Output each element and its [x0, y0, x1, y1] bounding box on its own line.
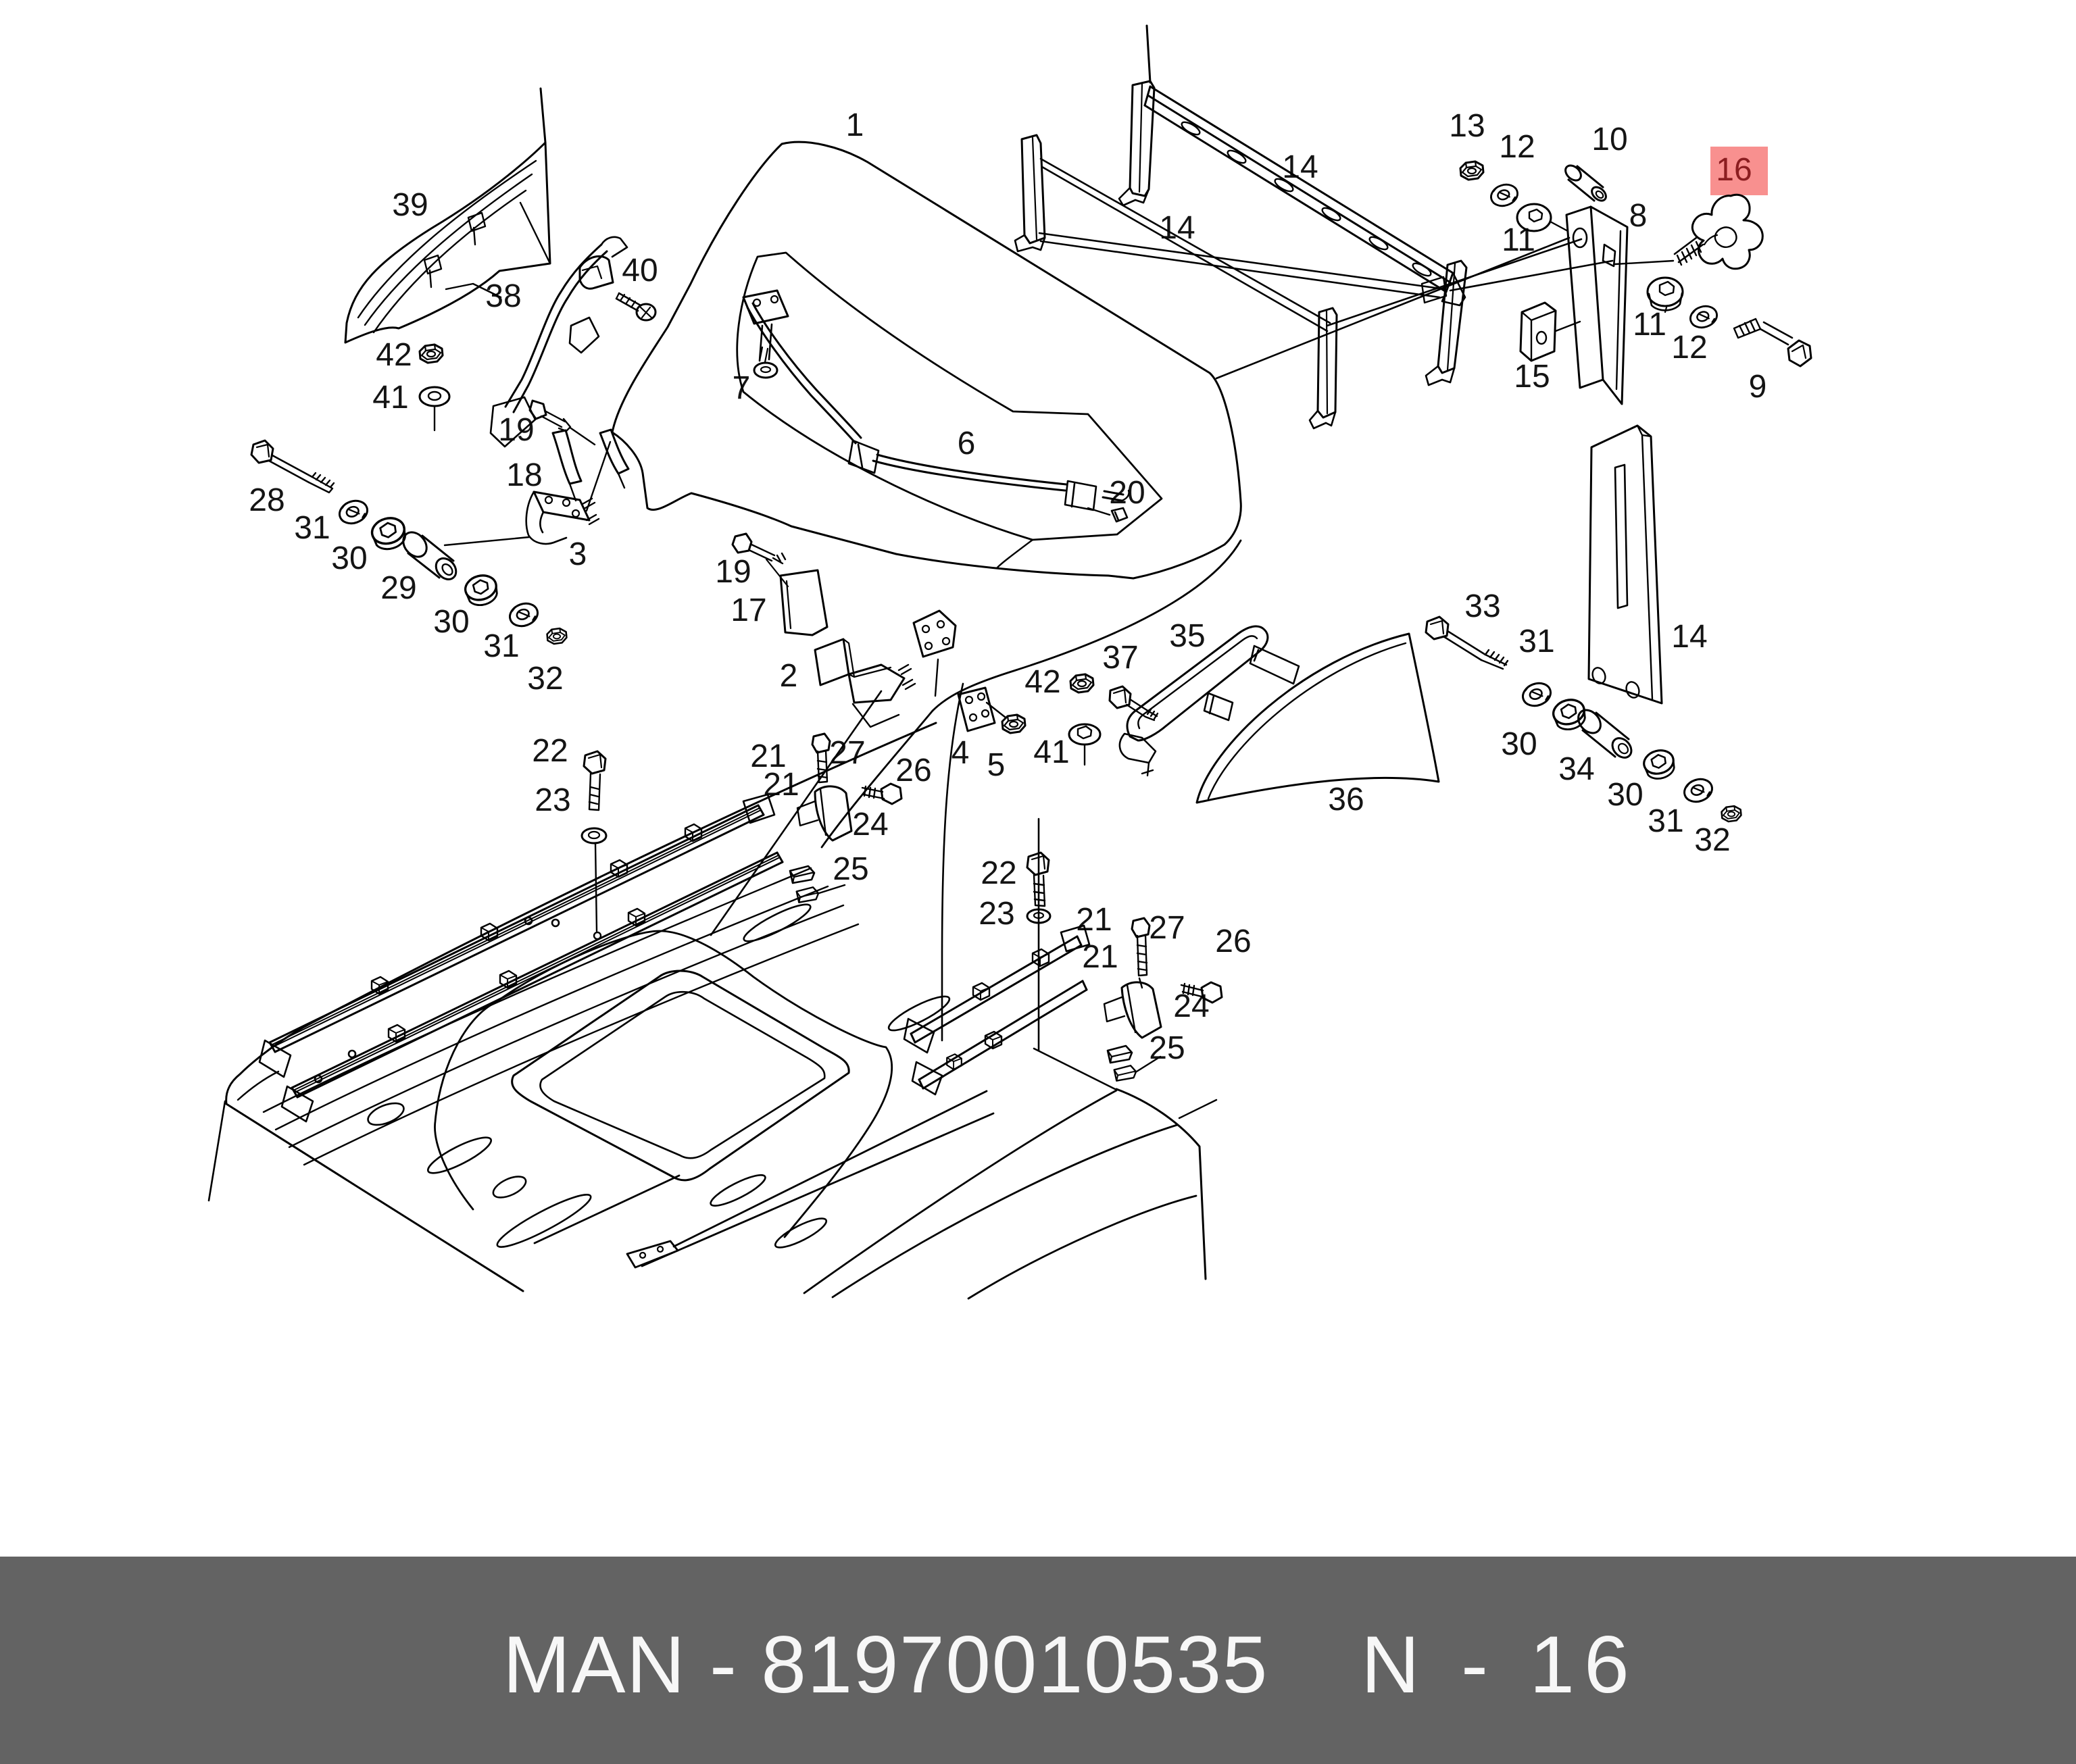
svg-text:9: 9	[1749, 369, 1767, 405]
svg-text:39: 39	[392, 187, 428, 223]
svg-text:22: 22	[981, 855, 1016, 891]
svg-text:16: 16	[1716, 152, 1752, 188]
svg-text:30: 30	[433, 604, 469, 640]
svg-text:30: 30	[1607, 777, 1643, 813]
svg-text:35: 35	[1169, 618, 1205, 654]
svg-text:28: 28	[249, 482, 285, 518]
svg-text:31: 31	[294, 510, 330, 546]
svg-text:23: 23	[535, 782, 570, 818]
svg-text:37: 37	[1102, 640, 1138, 676]
svg-text:42: 42	[1024, 664, 1060, 700]
svg-text:23: 23	[979, 896, 1014, 932]
svg-text:41: 41	[1033, 734, 1069, 770]
svg-text:26: 26	[895, 753, 931, 788]
svg-text:3: 3	[569, 536, 587, 572]
svg-text:29: 29	[380, 570, 416, 606]
svg-text:31: 31	[483, 628, 519, 664]
svg-text:6: 6	[958, 426, 976, 461]
svg-text:8: 8	[1629, 198, 1648, 234]
svg-text:33: 33	[1464, 588, 1500, 624]
svg-text:24: 24	[852, 807, 888, 842]
svg-text:32: 32	[1694, 822, 1730, 858]
svg-text:MAN - 81970010535: MAN - 81970010535	[503, 1619, 1268, 1710]
svg-text:14: 14	[1671, 619, 1707, 655]
svg-text:19: 19	[498, 412, 534, 448]
svg-text:27: 27	[1149, 910, 1185, 946]
svg-text:32: 32	[527, 661, 563, 697]
svg-text:N - 16: N - 16	[1361, 1619, 1639, 1710]
svg-text:5: 5	[987, 747, 1006, 783]
svg-text:34: 34	[1558, 751, 1594, 787]
svg-text:22: 22	[532, 733, 568, 769]
svg-text:1: 1	[846, 107, 864, 143]
svg-text:2: 2	[780, 658, 798, 694]
svg-text:4: 4	[951, 735, 970, 771]
svg-text:12: 12	[1499, 129, 1535, 165]
svg-text:15: 15	[1514, 359, 1550, 395]
svg-text:31: 31	[1648, 803, 1683, 839]
svg-text:13: 13	[1449, 108, 1485, 144]
svg-text:40: 40	[622, 253, 658, 288]
svg-text:30: 30	[331, 540, 367, 576]
svg-text:19: 19	[715, 554, 751, 590]
svg-text:14: 14	[1159, 210, 1195, 246]
svg-text:11: 11	[1633, 307, 1666, 343]
svg-text:21: 21	[1076, 902, 1112, 938]
svg-text:26: 26	[1215, 924, 1251, 959]
svg-text:41: 41	[372, 380, 408, 415]
svg-text:10: 10	[1591, 122, 1627, 157]
svg-text:12: 12	[1671, 330, 1707, 366]
svg-text:30: 30	[1501, 726, 1537, 762]
svg-text:31: 31	[1518, 624, 1554, 659]
svg-text:25: 25	[833, 851, 868, 887]
svg-text:17: 17	[731, 593, 766, 628]
svg-text:18: 18	[506, 457, 542, 493]
svg-text:36: 36	[1328, 782, 1364, 817]
svg-text:42: 42	[376, 337, 412, 373]
svg-text:38: 38	[485, 278, 521, 314]
